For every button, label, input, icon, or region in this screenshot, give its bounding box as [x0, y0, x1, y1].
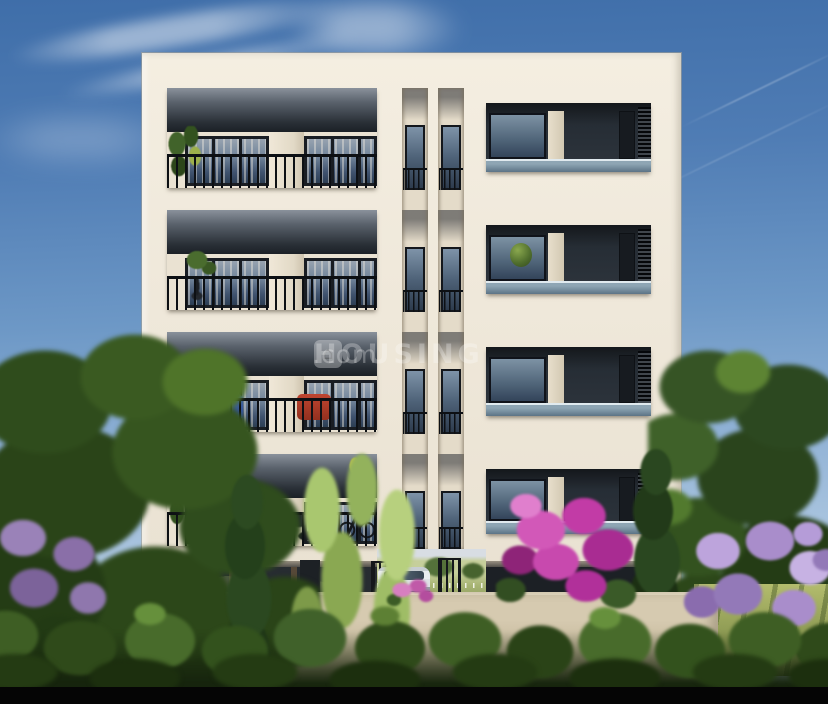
ac-louver-panel	[638, 229, 651, 281]
wall-pillar	[548, 233, 564, 281]
balcony-door	[619, 355, 635, 403]
glass-parapet	[486, 281, 651, 294]
lilac-bush-small	[786, 512, 828, 587]
window	[489, 113, 546, 159]
juliet-railing	[439, 527, 463, 549]
balcony-door	[619, 111, 635, 159]
juliet-railing	[439, 412, 463, 434]
glass-parapet	[486, 159, 651, 172]
metal-railing	[167, 276, 377, 310]
bottom-bar	[0, 687, 828, 704]
juliet-railing	[403, 412, 427, 434]
glass-parapet	[486, 403, 651, 416]
cloud-puff	[285, 4, 465, 52]
watermark-suffix-text: .com	[312, 340, 377, 369]
juliet-railing	[403, 168, 427, 190]
juliet-railing	[439, 290, 463, 312]
entrance-gate	[438, 558, 461, 596]
juliet-railing	[403, 290, 427, 312]
balcony-left-floor-4	[167, 88, 377, 188]
render-canvas: ⌂ HOUSING .com	[0, 0, 828, 704]
balcony-door	[619, 233, 635, 281]
window	[489, 357, 546, 403]
ledge-plant	[510, 243, 532, 267]
balcony-right-floor-3	[486, 225, 651, 294]
ac-louver-panel	[638, 107, 651, 159]
wall-pillar	[548, 355, 564, 403]
balcony-right-floor-4	[486, 103, 651, 172]
balcony-left-floor-3	[167, 210, 377, 310]
balcony-right-floor-2	[486, 347, 651, 416]
core-window-strip	[438, 88, 464, 549]
juliet-railing	[439, 168, 463, 190]
metal-railing	[167, 154, 377, 188]
wall-pillar	[548, 111, 564, 159]
